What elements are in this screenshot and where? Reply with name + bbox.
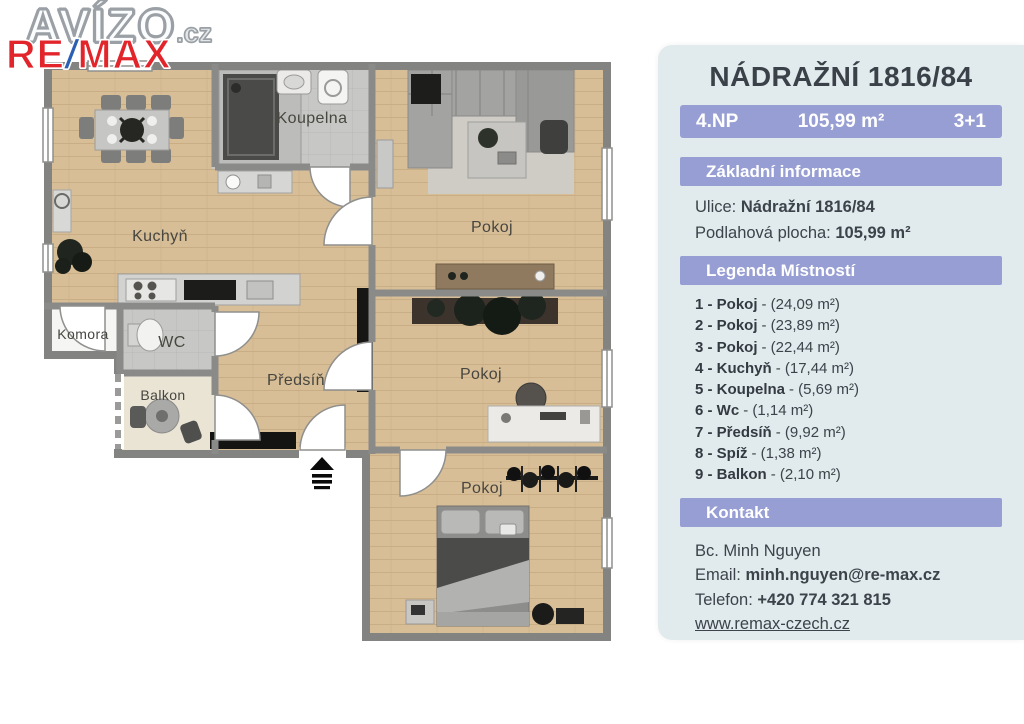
room-legend-list: 1 - Pokoj- (24,09 m²) 2 - Pokoj- (23,89 … — [695, 294, 1004, 486]
entrance-arrow — [310, 457, 334, 489]
kitchen-sink — [218, 171, 292, 193]
room-label-room3: Pokoj — [461, 480, 503, 497]
agent-phone: +420 774 321 815 — [757, 591, 891, 609]
avizo-tld: .cz — [176, 18, 212, 48]
logo: AVÍZO.cz RE/MAX — [26, 2, 212, 49]
street-line: Ulice: Nádražní 1816/84 — [695, 194, 1004, 220]
room-label-kitchen: Kuchyň — [132, 228, 188, 245]
listing-title: NÁDRAŽNÍ 1816/84 — [666, 61, 1016, 93]
remax-slash: / — [65, 31, 77, 77]
legend-item: 3 - Pokoj- (22,44 m²) — [695, 337, 1004, 358]
section-room-legend: Legenda Místností — [680, 256, 1002, 285]
plant — [532, 603, 554, 625]
agent-email: minh.nguyen@re-max.cz — [745, 566, 940, 584]
legend-item: 5 - Koupelna- (5,69 m²) — [695, 379, 1004, 400]
room-label-balcony: Balkon — [140, 387, 185, 403]
basic-info-block: Ulice: Nádražní 1816/84 Podlahová plocha… — [695, 194, 1004, 246]
info-panel: NÁDRAŽNÍ 1816/84 4.NP 105,99 m² 3+1 Zákl… — [658, 45, 1024, 640]
agent-name: Bc. Minh Nguyen — [695, 539, 1004, 564]
summary-bar: 4.NP 105,99 m² 3+1 — [680, 105, 1002, 138]
room-label-wc: WC — [158, 334, 185, 351]
floor-area-value: 105,99 m² — [835, 224, 910, 242]
room-label-room2: Pokoj — [460, 366, 502, 383]
agent-email-line: Email: minh.nguyen@re-max.cz — [695, 563, 1004, 588]
room-label-room1: Pokoj — [471, 219, 513, 236]
section-contact: Kontakt — [680, 498, 1002, 527]
remax-logo: RE/MAX — [6, 34, 171, 75]
legend-item: 1 - Pokoj- (24,09 m²) — [695, 294, 1004, 315]
street-value: Nádražní 1816/84 — [741, 198, 875, 216]
room-label-hall: Předsíň — [267, 372, 325, 389]
legend-item: 9 - Balkon- (2,10 m²) — [695, 464, 1004, 485]
legend-item: 4 - Kuchyň- (17,44 m²) — [695, 358, 1004, 379]
floor-area-line: Podlahová plocha: 105,99 m² — [695, 220, 1004, 246]
bed — [437, 506, 529, 626]
layout-badge: 3+1 — [954, 111, 986, 133]
legend-item: 7 - Předsíň- (9,92 m²) — [695, 422, 1004, 443]
agency-website-link[interactable]: www.remax-czech.cz — [695, 612, 1004, 637]
contact-block: Bc. Minh Nguyen Email: minh.nguyen@re-ma… — [695, 539, 1004, 637]
legend-item: 8 - Spíž- (1,38 m²) — [695, 443, 1004, 464]
room-label-bathroom: Koupelna — [277, 110, 348, 127]
floor-badge: 4.NP — [696, 111, 738, 133]
agent-phone-line: Telefon: +420 774 321 815 — [695, 588, 1004, 613]
legend-item: 6 - Wc- (1,14 m²) — [695, 400, 1004, 421]
legend-item: 2 - Pokoj- (23,89 m²) — [695, 315, 1004, 336]
section-basic-info: Základní informace — [680, 157, 1002, 186]
area-badge: 105,99 m² — [798, 111, 885, 133]
room-label-pantry: Komora — [57, 326, 108, 342]
coffee-table — [468, 122, 526, 178]
washing-machine — [318, 70, 348, 104]
floor-plan: Kuchyň Koupelna Pokoj Pokoj Pokoj WC Kom… — [0, 0, 660, 700]
cabinet — [377, 140, 393, 188]
kitchen-counter — [118, 274, 300, 305]
